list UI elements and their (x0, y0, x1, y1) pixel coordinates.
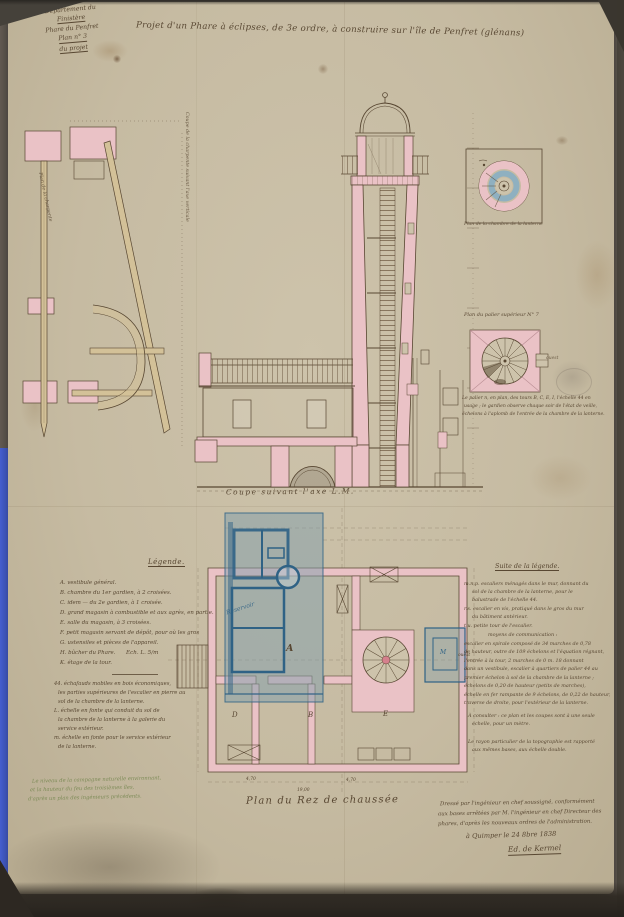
lantern-room-plan-detail (462, 145, 580, 231)
suite-post-line: Le rayon particulier de la topographie e… (468, 740, 595, 746)
legend-extra-line: service extérieur. (58, 727, 104, 733)
legend-item: C. idem — du 2e gardien, à 1 croisée. (60, 600, 163, 606)
suite-line: escalier en spirale composé de 34 marche… (464, 642, 591, 648)
photo-edge-bottom (0, 882, 624, 917)
signature-name: Ed. de Kermel (508, 844, 562, 855)
upper-landing-plan-detail (462, 326, 580, 400)
plan-dim: 4,70 (246, 777, 256, 782)
section-caption: Coupe suivant l'axe L.M. (226, 487, 355, 497)
legend-extra-line: les parties supérieures de l'escalier en… (58, 691, 185, 697)
suite-line: balustrade de l'échelle 44. (472, 598, 538, 604)
legend-extra-line: la chambre de la lanterne à la galerie d… (58, 718, 165, 724)
suite-line: traverse de droite, pour l'extérieur de … (464, 701, 588, 707)
suite-line: dans un vestibule, escalier à quartiers … (464, 667, 598, 673)
legend-item: H. bûcher du Phare. (60, 650, 115, 656)
landing-note-line: échelons à l'aplomb de l'entrée de la ch… (462, 412, 605, 417)
suite-line: échelons de 0,20 de hauteur (petits de m… (464, 684, 586, 690)
suite-heading: Suite de la légende. (495, 563, 559, 571)
photo-edge-top (0, 0, 624, 5)
signature-line: Dressé par l'ingénieur en chef soussigné… (440, 799, 595, 808)
signature-line: aux bases arrêtées par M. l'ingénieur en… (438, 809, 601, 818)
legend-item: K. étage de la tour. (60, 660, 112, 666)
landing-note-line: usage ; le gardien observe chaque soir d… (464, 404, 597, 409)
legend-green-note-line: et la hauteur du feu des troisièmes îles… (30, 786, 134, 795)
ground-plan-caption: Plan du Rez de chaussée (246, 794, 399, 807)
suite-line: m.n.p. escaliers ménagés dans le mur, do… (464, 582, 589, 588)
charpente-section-drawing (12, 105, 190, 485)
charpente-vertical-caption: Coupe de la charpente suivant l'axe vert… (183, 112, 189, 222)
legend-item: B. chambre du 1er gardien, à 2 croisées. (60, 590, 171, 596)
suite-line: du bâtiment antérieur. (472, 615, 528, 621)
room-label-d: D (232, 711, 238, 719)
legend-extra-line: de la lanterne. (58, 745, 96, 751)
legend-heading: Légende. (148, 558, 185, 567)
legend-green-note-line: Le niveau de la campagne naturelle envir… (32, 776, 161, 785)
sheet-title: Projet d'un Phare à éclipses, de 3e ordr… (136, 21, 576, 40)
suite-line: moyens de communication : (488, 633, 557, 639)
suite-line: r.s. escalier en vis, pratiqué dans le g… (464, 607, 584, 613)
suite-line: premier échelon à sol de la chambre de l… (464, 676, 594, 682)
landing-note-line: Le palier n, en plan, des tours B, C, E,… (462, 396, 591, 401)
lantern-detail-caption: Plan de la chambre de la lanterne (464, 222, 543, 227)
suite-line: t.u. petite tour de l'escalier. (464, 624, 533, 630)
plan-dim: 4,70 (346, 778, 356, 783)
legend-item: G. ustensiles et pièces de l'appareil. (60, 640, 158, 646)
plan-scale-note: Ech. L. 5/m (126, 650, 158, 656)
landing-detail-caption: Plan du palier supérieur N° 7 (464, 313, 539, 319)
photo-of-archival-drawing: Département du Finistère Phare du Penfre… (0, 0, 624, 917)
legend-extra-line: 44. échafauds mobiles en bois économique… (54, 682, 171, 688)
lighthouse-section-drawing (195, 88, 485, 506)
legend-item: E. salle du magasin, à 3 croisées. (60, 620, 151, 626)
stamp-line: Plan n° 3 (58, 33, 87, 44)
signature-dateline: à Quimper le 24 8bre 1838 (466, 831, 557, 841)
ground-floor-plan-drawing (168, 508, 483, 793)
suite-post-line: échelle, pour un mètre. (472, 722, 530, 728)
legend-item: A. vestibule général. (60, 580, 116, 586)
suite-line: échelle en fer rampante de 9 échelons, d… (464, 693, 610, 699)
stamp-line: Finistère (57, 14, 86, 25)
legend-extra-line: L. échelle en fonte qui conduit du sol d… (54, 709, 160, 715)
stamp-line: du projet (59, 43, 88, 54)
suite-line: de hauteur, outre de 109 échelons et l'é… (464, 650, 604, 656)
photo-edge-right (617, 0, 624, 917)
legend-green-note-line: d'après un plan des ingénieurs précédent… (28, 795, 142, 804)
room-label-m: M (440, 650, 446, 657)
signature-line: phares, d'après les nouveaux ordres de l… (438, 819, 592, 828)
suite-line: sol de la chambre de la lanterne, pour l… (472, 590, 573, 596)
legend-item: F. petit magasin servant de dépôt, pour … (60, 630, 199, 636)
room-label-e: E (383, 710, 388, 718)
legend-item: D. grand magasin à combustible et aux ag… (60, 610, 214, 616)
landing-detail-word: ouest (546, 356, 558, 361)
plan-dim: 19,00 (297, 788, 310, 793)
legend-extra-line: sol de la chambre de la lanterne. (58, 700, 145, 706)
legend-extra-line: m. échelle en fonte pour le service exté… (54, 736, 171, 742)
suite-line: l'entrée à la tour, 2 marches de 0 m. 18… (464, 659, 584, 665)
room-label-a: A (286, 644, 293, 655)
legend-divider (112, 674, 158, 675)
room-label-b: B (308, 711, 313, 719)
drawing-layer: Département du Finistère Phare du Penfre… (0, 0, 624, 917)
suite-post-line: aux mêmes bases, aux échelle double. (472, 748, 567, 754)
suite-post-line: À consulter : ce plan et les coupes sont… (468, 714, 595, 720)
